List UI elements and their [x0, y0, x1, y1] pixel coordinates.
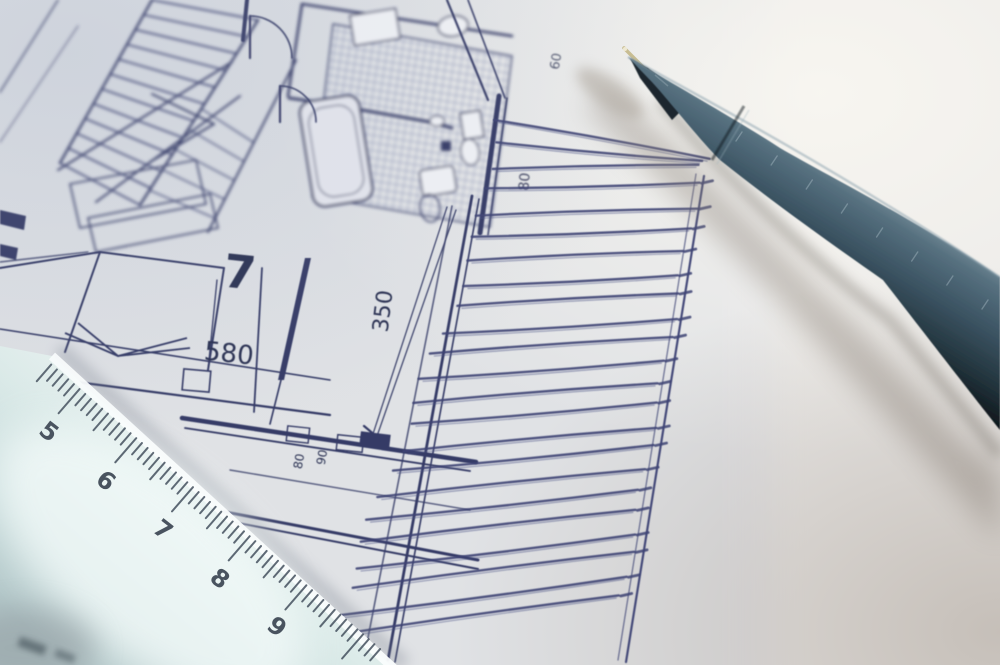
- vignette-overlay: [0, 0, 1000, 665]
- blueprint-photo: 60 80 7 580 350 80 90: [0, 0, 1000, 665]
